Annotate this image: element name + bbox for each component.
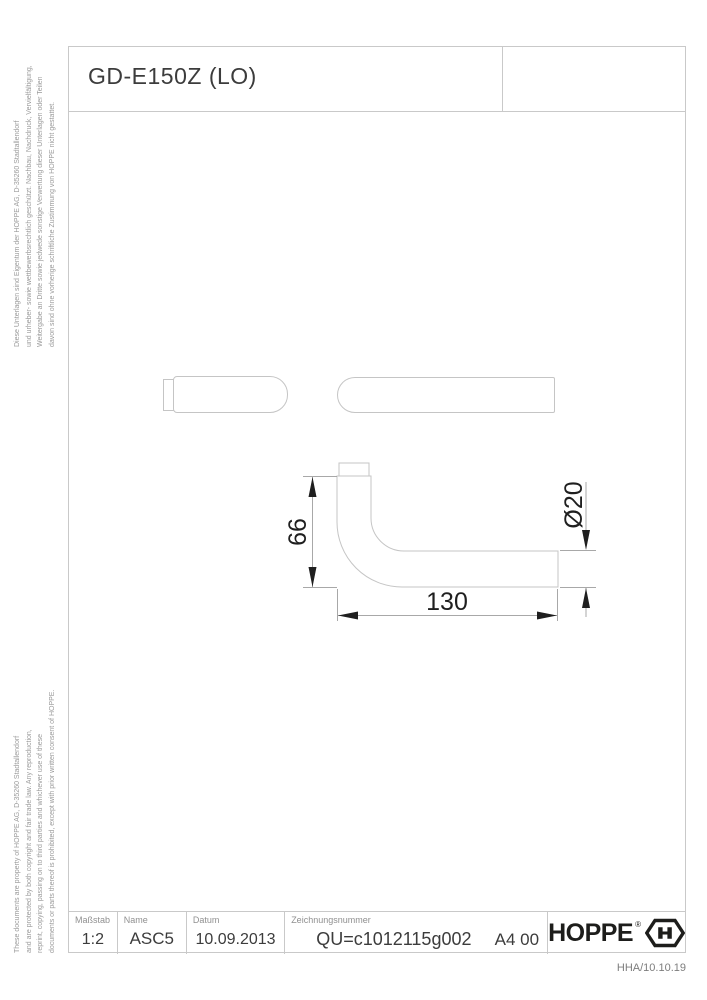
legal-line: Diese Unterlagen sind Eigentum der HOPPE… <box>12 45 24 347</box>
legal-notice-english: These documents are property of HOPPE AG… <box>12 695 60 953</box>
arrowhead-up <box>309 477 317 497</box>
legal-line: davon sind ohne vorherige schriftliche Z… <box>47 45 59 347</box>
brand-wordmark: HOPPE <box>548 919 633 948</box>
dimension-66-text: 66 <box>284 518 312 546</box>
legal-line: und urheber- sowie wettbewerbsrechtlich … <box>24 45 36 347</box>
title-block: Maßstab 1:2 Name ASC5 Datum 10.09.2013 Z… <box>69 911 685 954</box>
legal-notice-german: Diese Unterlagen sind Eigentum der HOPPE… <box>12 45 60 347</box>
dimension-d20-text: Ø20 <box>560 481 588 528</box>
drawing-number-value: QU=c1012115g002 <box>316 929 471 950</box>
arrowhead-down <box>309 567 317 587</box>
drawing-title: GD-E150Z (LO) <box>88 63 257 90</box>
title-band-divider <box>502 47 503 111</box>
hoppe-hexagon-logo-icon <box>645 918 685 948</box>
registered-mark: ® <box>635 920 641 929</box>
scale-cell: Maßstab 1:2 <box>69 912 117 954</box>
lever-handle-outline <box>337 476 558 587</box>
revision-note: HHA/10.10.19 <box>617 962 686 974</box>
legal-line: and are protected by both copyright and … <box>24 695 36 953</box>
handle-side-view-drawing: 66 130 Ø20 <box>280 440 620 640</box>
arrowhead-up <box>582 588 590 608</box>
scale-value: 1:2 <box>69 931 117 949</box>
legal-line: documents or parts thereof is prohibited… <box>47 695 59 953</box>
drawing-number-label: Zeichnungsnummer <box>291 915 371 925</box>
legal-line: reprint, copying, passing on to third pa… <box>35 695 47 953</box>
date-cell: Datum 10.09.2013 <box>186 912 284 954</box>
arrowhead-right <box>537 612 557 620</box>
dimension-130-text: 130 <box>426 588 468 616</box>
arrowhead-left <box>338 612 358 620</box>
sheet-format-value: A4 00 <box>495 930 539 950</box>
name-cell: Name ASC5 <box>117 912 186 954</box>
drawing-sheet: Diese Unterlagen sind Eigentum der HOPPE… <box>0 0 707 1000</box>
name-value: ASC5 <box>118 929 186 949</box>
brand-cell: HOPPE® <box>547 912 685 954</box>
date-label: Datum <box>193 915 220 925</box>
handle-neck-cap <box>339 463 369 476</box>
scale-label: Maßstab <box>75 915 110 925</box>
title-band: GD-E150Z (LO) <box>69 47 685 112</box>
handle-grip-top-view-left <box>173 376 288 413</box>
legal-line: Weitergabe an Dritte sowie jedwede sonst… <box>35 45 47 347</box>
date-value: 10.09.2013 <box>187 931 284 949</box>
name-label: Name <box>124 915 148 925</box>
handle-grip-top-view-right <box>337 377 555 413</box>
drawing-number-cell: Zeichnungsnummer QU=c1012115g002 A4 00 <box>284 912 547 954</box>
arrowhead-down <box>582 530 590 550</box>
legal-line: These documents are property of HOPPE AG… <box>12 695 24 953</box>
